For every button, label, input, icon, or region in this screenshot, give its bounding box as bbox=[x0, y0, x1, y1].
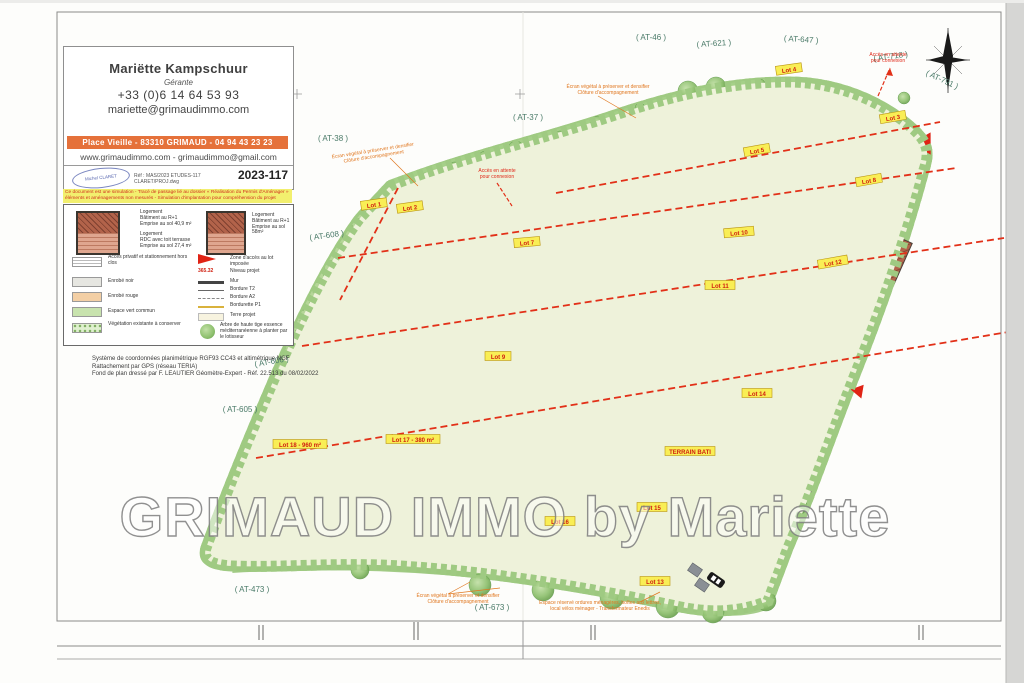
parcel-label: ( AT-647 ) bbox=[784, 34, 819, 45]
legend-building-swatch-r1-58 bbox=[206, 211, 246, 255]
surveyor-stamp: Michel CLARET bbox=[71, 165, 131, 191]
survey-coordinate-note: Système de coordonnées planimétrique RGF… bbox=[92, 356, 562, 379]
svg-text:Lot 13: Lot 13 bbox=[646, 580, 664, 586]
legend-enrobe-noir-label: Enrobé noir bbox=[108, 279, 194, 285]
parcel-label: ( AT-473 ) bbox=[235, 585, 270, 594]
legend-espace-vert-label: Espace vert commun bbox=[108, 309, 194, 315]
note-line-2: éléments et aménagements non mesurés - S… bbox=[65, 196, 290, 202]
watermark-text: GRIMAUD IMMO by Mariette bbox=[120, 485, 891, 548]
legend-mur-label: Mur bbox=[230, 279, 239, 285]
survey-line-2: Rattachement par GPS (réseau TERIA) bbox=[92, 364, 562, 372]
svg-text:Clôture d'accompagnement: Clôture d'accompagnement bbox=[578, 90, 640, 96]
note-ecran-vegetal: Écran végétal à préserver et densifier bbox=[566, 83, 649, 90]
legend-niveau-projet-label: Niveau projet bbox=[230, 269, 290, 275]
legend-swatch-espace-vert bbox=[72, 307, 102, 317]
parcel-label: ( AT-791 ) bbox=[925, 68, 960, 91]
legend-access-triangle-icon bbox=[198, 254, 216, 264]
legend-building-r1-58-label: Logement Bâtiment au R+1 Emprise au sol … bbox=[252, 213, 292, 225]
legend-bordure-t2-symbol bbox=[198, 290, 224, 291]
legend-terre-projet-label: Terre projet bbox=[230, 313, 255, 319]
legend-terre-projet-swatch bbox=[198, 313, 224, 321]
legend-bordure-t2-label: Bordure T2 bbox=[230, 287, 255, 293]
svg-text:Lot 4: Lot 4 bbox=[782, 67, 798, 75]
survey-line-3: Fond de plan dressé par F. LEAUTIER Géom… bbox=[92, 371, 562, 379]
agency-business-card: Mariëtte Kampschuur Gérante +33 (0)6 14 … bbox=[63, 46, 294, 190]
file-reference: Réf : MAS/2023 ETUDES-117 CLARET/PROJ.dw… bbox=[134, 173, 229, 185]
parcel-label: ( AT-46 ) bbox=[636, 33, 666, 42]
legend-tree-icon bbox=[200, 324, 215, 339]
document-number: 2023-117 bbox=[238, 168, 288, 182]
parcel-label: ( AT-37 ) bbox=[513, 113, 543, 122]
survey-line-1: Système de coordonnées planimétrique RGF… bbox=[92, 356, 562, 364]
note-ecran-vegetal: Écran végétal à préserver et densifier bbox=[416, 592, 499, 599]
agent-phone: +33 (0)6 14 64 53 93 bbox=[64, 88, 293, 102]
svg-text:pour connexion: pour connexion bbox=[480, 174, 514, 180]
legend-swatch-acces-privatif bbox=[72, 257, 102, 267]
agent-name: Mariëtte Kampschuur bbox=[64, 61, 293, 76]
scanned-site-plan-sheet: ( AT-46 ) ( AT-621 ) ( AT-647 ) ( AT-718… bbox=[0, 0, 1024, 683]
fold-ticks bbox=[259, 622, 923, 640]
legend-vegetation-label: Végétation existante à conserver bbox=[108, 322, 194, 328]
legend-bordure-a2-symbol bbox=[198, 298, 224, 299]
card-divider bbox=[64, 165, 293, 166]
svg-text:Lot 11: Lot 11 bbox=[711, 284, 729, 290]
svg-text:TERRAIN BATI: TERRAIN BATI bbox=[669, 450, 711, 456]
parcel-label: ( AT-38 ) bbox=[318, 134, 348, 143]
highlighted-note-banner: Ce document est une simulation - Tracé d… bbox=[63, 189, 292, 203]
legend-acces-privatif-label: Accès privatif et stationnement hors clo… bbox=[108, 255, 194, 267]
agent-role: Gérante bbox=[64, 78, 293, 87]
legend-level-sample: 365.32 bbox=[198, 269, 213, 275]
svg-text:Lot 14: Lot 14 bbox=[748, 392, 766, 398]
svg-text:Clôture d'accompagnement: Clôture d'accompagnement bbox=[428, 599, 490, 605]
parcel-label: ( AT-621 ) bbox=[696, 38, 731, 49]
legend-bordurette-p1-symbol bbox=[198, 306, 224, 308]
agent-email: mariette@grimaudimmo.com bbox=[64, 104, 293, 116]
legend-bordurette-p1-label: Bordurette P1 bbox=[230, 303, 261, 309]
note-line-1: Ce document est une simulation - Tracé d… bbox=[65, 190, 290, 196]
svg-text:Lot 17 - 380 m²: Lot 17 - 380 m² bbox=[392, 437, 434, 444]
legend-box: Logement Bâtiment au R+1 Emprise au sol … bbox=[63, 204, 294, 346]
legend-zone-acces-label: Zone d'accès au lot imposée bbox=[230, 256, 290, 268]
svg-text:pour connexion: pour connexion bbox=[871, 58, 905, 64]
legend-bordure-a2-label: Bordure A2 bbox=[230, 295, 255, 301]
parcel-label: ( AT-605 ) bbox=[223, 405, 258, 414]
svg-text:local vélos ménager - Transfor: local vélos ménager - Transformateur Ene… bbox=[550, 606, 650, 612]
legend-swatch-enrobe-noir bbox=[72, 277, 102, 287]
svg-text:Lot 18 - 960 m²: Lot 18 - 960 m² bbox=[279, 442, 321, 449]
legend-building-swatch-r1 bbox=[76, 211, 120, 255]
legend-arbre-label: Arbre de haute tige essence méditerranée… bbox=[220, 323, 290, 340]
legend-mur-symbol bbox=[198, 281, 224, 284]
legend-swatch-enrobe-rouge bbox=[72, 292, 102, 302]
legend-building-r1-label: Logement Bâtiment au R+1 Emprise au sol … bbox=[140, 210, 204, 222]
legend-enrobe-rouge-label: Enrobé rouge bbox=[108, 294, 194, 300]
legend-swatch-vegetation bbox=[72, 323, 102, 333]
agency-web-line: www.grimaudimmo.com - grimaudimmo@gmail.… bbox=[64, 152, 293, 162]
agency-address-bar: Place Vieille - 83310 GRIMAUD - 04 94 43… bbox=[67, 136, 288, 149]
legend-building-rdc-label: Logement RDC avec toit terrasse Emprise … bbox=[140, 232, 204, 244]
